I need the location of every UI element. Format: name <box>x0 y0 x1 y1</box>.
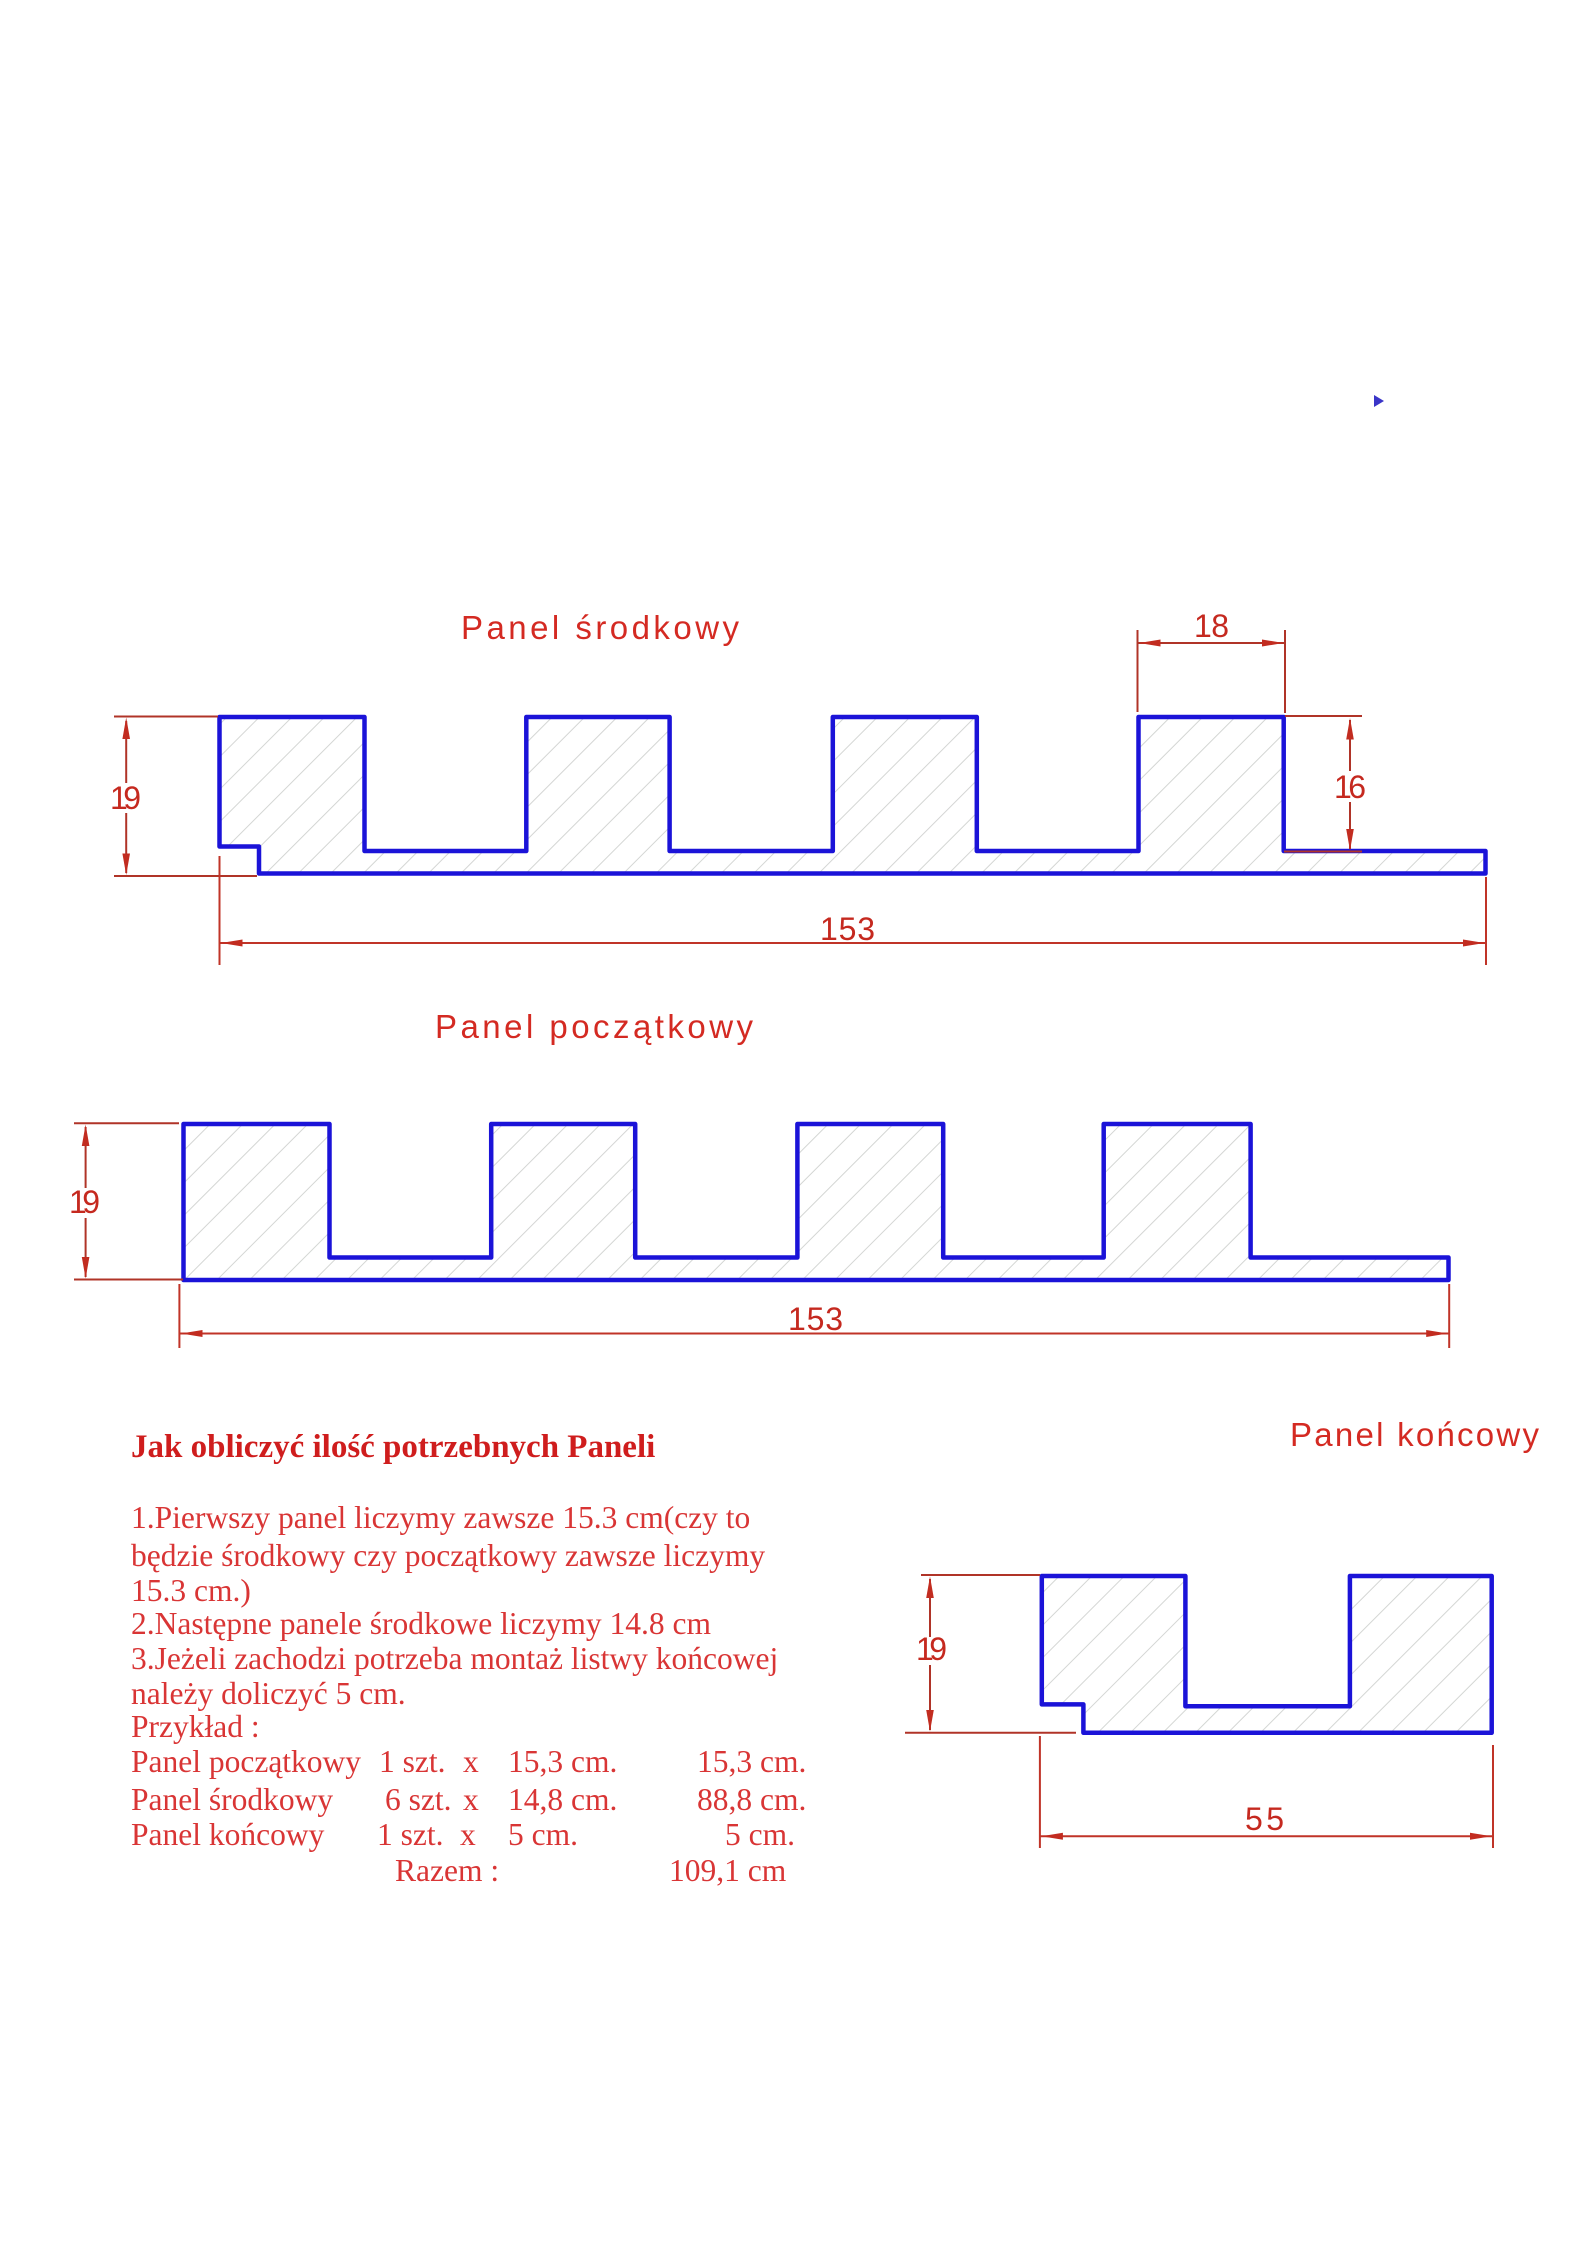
svg-text:55: 55 <box>1245 1801 1284 1837</box>
svg-text:153: 153 <box>788 1301 843 1337</box>
svg-text:16: 16 <box>1334 769 1366 805</box>
svg-text:Panel początkowy: Panel początkowy <box>435 1008 754 1045</box>
svg-text:19: 19 <box>110 780 141 816</box>
svg-text:19: 19 <box>916 1631 947 1667</box>
svg-text:153: 153 <box>820 911 875 947</box>
svg-text:Panel końcowy: Panel końcowy <box>1290 1416 1540 1453</box>
svg-text:19: 19 <box>69 1184 100 1220</box>
svg-text:Panel środkowy: Panel środkowy <box>461 609 740 646</box>
svg-text:18: 18 <box>1194 608 1229 644</box>
